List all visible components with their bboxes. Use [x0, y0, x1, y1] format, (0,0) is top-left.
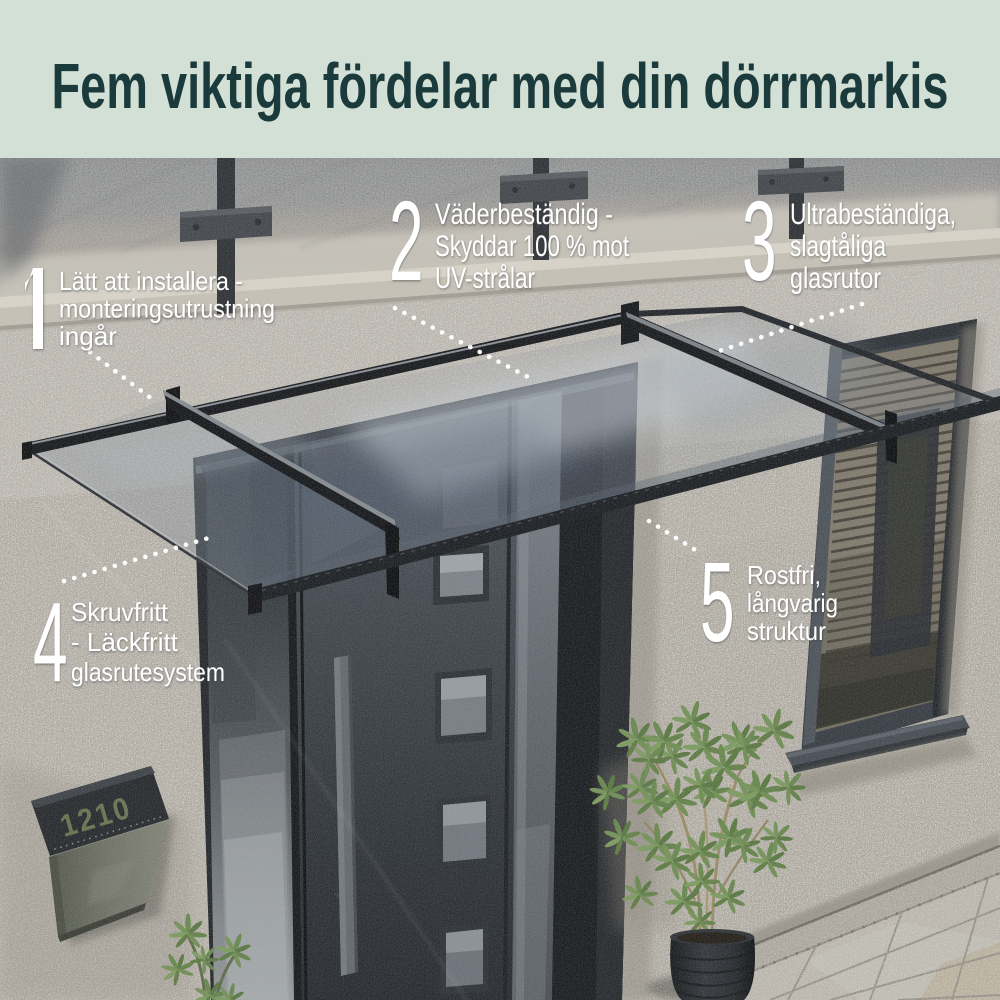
svg-text:2: 2 [389, 178, 424, 304]
svg-text:Väderbeständig -: Väderbeständig - [435, 198, 613, 231]
svg-text:3: 3 [742, 178, 777, 304]
svg-text:Ultrabeständiga,: Ultrabeständiga, [790, 198, 956, 231]
svg-text:Lätt att installera -: Lätt att installera - [59, 266, 243, 296]
svg-text:slagtåliga: slagtåliga [790, 230, 886, 263]
svg-text:Rostfri,: Rostfri, [747, 560, 821, 590]
svg-text:monteringsutrustning: monteringsutrustning [59, 294, 275, 324]
svg-text:Skruvfritt: Skruvfritt [71, 597, 169, 627]
svg-text:glasrutesystem: glasrutesystem [71, 657, 225, 687]
svg-text:struktur: struktur [747, 616, 826, 646]
svg-text:ingår: ingår [59, 321, 117, 351]
svg-text:långvarig: långvarig [747, 588, 838, 618]
svg-text:4: 4 [33, 579, 68, 705]
svg-text:glasrutor: glasrutor [790, 262, 881, 295]
svg-text:- Läckfritt: - Läckfritt [71, 627, 179, 657]
svg-text:5: 5 [700, 539, 735, 665]
svg-text:UV-strålar: UV-strålar [435, 262, 535, 295]
svg-text:Skyddar 100 % mot: Skyddar 100 % mot [435, 230, 629, 263]
svg-text:Fem viktiga fördelar med din d: Fem viktiga fördelar med din dörrmarkis [52, 50, 949, 122]
